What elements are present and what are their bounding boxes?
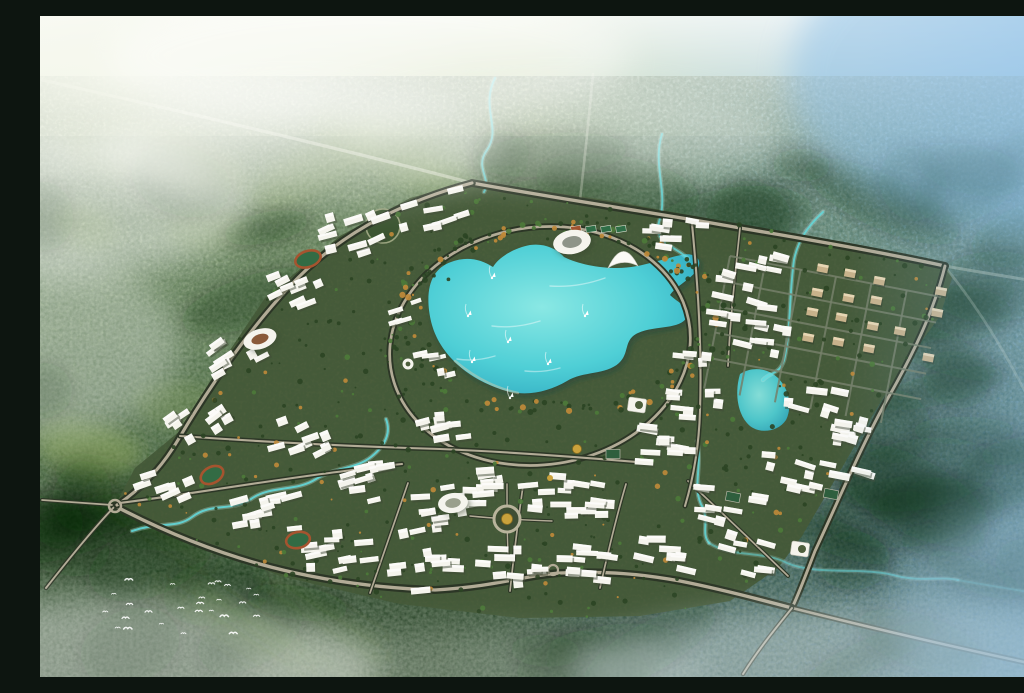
tree [226,532,230,536]
tree [552,401,555,404]
tree [238,337,242,341]
tree [138,503,142,507]
shore-tree [418,281,422,285]
tree [237,436,240,439]
tree [484,554,487,557]
lakeside-court [616,225,627,232]
tree [587,607,590,610]
tree [303,567,307,571]
shore-tree [485,400,490,405]
tree [546,237,549,240]
shore-tree [424,271,429,276]
tree [305,344,308,347]
tree [602,524,604,526]
shore-tree [399,292,405,298]
building-roof [565,513,578,516]
tree [324,425,327,428]
tree [590,535,592,537]
building-roof [430,555,439,558]
tree [392,334,394,336]
building-roof [324,537,339,539]
shore-tree [391,344,396,349]
tree [594,474,596,476]
tree [358,433,363,438]
tree [225,445,231,451]
tree [451,449,455,453]
shore-tree [518,409,522,413]
tree [527,471,532,476]
tree [255,563,258,566]
tree [346,523,349,526]
tree [320,353,325,358]
tree [421,261,423,263]
tree [252,390,256,394]
tree [627,222,630,225]
tree [362,352,365,355]
tree [542,400,547,405]
shore-tree [440,387,443,390]
tree [453,246,458,251]
tree [180,505,183,508]
shore-tree [579,220,583,224]
tree [465,399,469,403]
tree [314,320,317,323]
shore-tree [458,237,464,243]
tree [363,369,368,374]
shore-tree [527,409,533,415]
shore-tree [488,233,492,237]
tree [281,308,284,311]
tree [427,342,432,347]
tree [429,571,432,574]
tree [380,596,382,598]
building-roof [550,502,571,504]
tree [376,258,378,260]
tree [254,475,257,478]
shore-tree [620,393,625,398]
tree [611,548,613,550]
tree [282,404,286,408]
tree [366,572,369,575]
tree [324,368,326,370]
tree [605,217,608,220]
lakeside-court [601,225,612,232]
gold-spiral [573,445,582,454]
tree [458,587,463,592]
tree [429,399,432,402]
tree [557,200,559,202]
tree [201,433,206,438]
shore-tree [585,221,589,225]
cloud [100,86,500,206]
tree [298,339,301,342]
shore-tree [618,407,624,413]
tree [474,199,479,204]
shore-tree [600,234,605,239]
tree [384,409,386,411]
tree [259,425,263,429]
tree [214,507,217,510]
tree [430,568,433,571]
tree [237,545,240,548]
shore-tree [642,238,648,244]
building-roof [595,511,608,514]
tree [343,378,348,383]
tree [546,506,548,508]
tree [356,585,359,588]
shore-tree [501,226,505,230]
shore-tree [394,335,399,340]
tree [263,560,267,564]
shore-tree [552,226,557,231]
tree [615,480,619,484]
tree [341,545,344,548]
tree [406,341,411,346]
tree [327,320,331,324]
shore-tree [567,404,572,409]
tree [299,406,303,410]
tree [374,589,380,595]
tree [289,468,293,472]
tree [397,395,401,399]
tree [542,542,545,545]
tree [402,393,405,396]
shore-tree [388,339,393,344]
tree [383,261,386,264]
tree [424,202,430,208]
tree [212,518,217,523]
tree [337,401,339,403]
tree [445,454,449,458]
tree [585,524,587,526]
shore-tree [412,284,415,287]
tree [405,447,410,452]
shore-tree [432,274,436,278]
tree [547,513,550,516]
shore-tree [465,236,468,239]
tree [387,301,391,305]
tree [642,577,645,580]
tree [367,279,372,284]
tree [594,444,597,447]
shore-tree [454,240,459,245]
tree [544,218,547,221]
tree [622,599,627,604]
tree [479,408,483,412]
tree [295,404,298,407]
tree [261,434,264,437]
sailboat-hull [467,315,469,317]
tree [352,310,355,313]
shore-tree [647,244,651,248]
tree [478,198,481,201]
tree [244,477,248,481]
sailboat-hull [507,341,509,343]
tree [320,480,324,484]
tree [617,596,619,598]
gold-ornament [547,475,553,481]
building-roof [532,567,548,569]
shore-tree [398,327,402,331]
tree [266,530,268,532]
shore-tree [424,265,429,270]
tree [437,580,439,582]
tree [492,431,496,435]
aerial-render-canvas [40,16,1024,677]
tree [380,349,383,352]
shore-tree [474,246,478,250]
shore-tree [534,399,539,404]
tree [272,526,275,529]
tree [583,440,586,443]
tree [290,571,296,577]
tree [359,532,361,534]
tree [380,441,384,445]
shore-tree [608,235,611,238]
shore-tree [616,240,620,244]
tree [306,579,308,581]
tree [409,266,414,271]
tree [178,456,181,459]
shore-tree [432,365,434,367]
tree [335,288,338,291]
tree [580,566,584,570]
tree [338,464,341,467]
tree [503,197,506,200]
shore-tree [629,391,632,394]
tree [181,450,185,454]
tree [556,425,561,430]
tree [396,412,399,415]
shore-tree [520,404,526,410]
tree [124,492,127,495]
tree [341,390,344,393]
tree [427,523,431,527]
tree [558,574,561,577]
gold-monument [502,514,513,525]
shore-tree [582,404,585,407]
tree [196,539,198,541]
tree [524,538,526,540]
tree [146,495,149,498]
tree [467,461,469,463]
tree [635,565,639,569]
tree [543,581,547,585]
shore-tree [469,240,473,244]
tree [290,561,294,565]
tree [337,550,339,552]
tree [246,368,251,373]
tree [550,533,554,537]
tree [360,551,362,553]
tree [400,357,403,360]
tree [368,408,372,412]
shore-tree [443,389,448,394]
tree [571,553,574,556]
tree [584,225,586,227]
shore-tree [413,334,417,338]
tree [385,520,389,524]
tree [348,258,352,262]
tree [336,415,339,418]
tree [400,417,405,422]
tree [284,573,288,577]
building-roof [467,500,486,502]
lakeside-court [586,225,597,232]
tree [596,221,599,224]
shore-tree [582,407,585,410]
round-building-court [406,362,411,367]
shore-tree [644,251,650,257]
tree [558,600,563,605]
tree [437,247,441,251]
tree [404,388,408,392]
tree [526,205,528,207]
tree [419,306,423,310]
sailboat-hull [509,397,511,399]
shore-tree [532,226,536,230]
shore-tree [509,407,513,411]
tree [307,323,310,326]
tree [344,354,350,360]
tree [585,214,589,218]
tree [352,393,355,396]
shore-tree [403,285,408,290]
tree [591,601,596,606]
tree [274,546,279,551]
tree [576,460,581,465]
shore-tree [419,363,424,368]
tree [394,443,398,447]
tree [480,605,485,610]
tree [338,576,342,580]
tree [177,482,180,485]
tree [443,407,448,412]
tree [337,321,341,325]
tree [274,462,279,467]
tree [545,440,548,443]
shore-tree [438,257,444,263]
shore-tree [627,241,631,245]
shore-tree [520,222,526,228]
tree [530,200,533,203]
tree [566,202,568,204]
tree [538,558,542,562]
tree [550,610,553,613]
tree [218,391,222,395]
tree [226,482,228,484]
tree [228,453,231,456]
tree [258,445,260,447]
tree [404,336,408,340]
building-roof [482,483,503,485]
tree [431,487,436,492]
tree [535,529,539,533]
tree [297,379,303,385]
tree [447,277,451,281]
tree [323,470,326,473]
tree [168,504,172,508]
tree [389,232,394,237]
tree [365,510,369,514]
shore-tree [405,294,411,300]
tree [465,537,470,542]
tree [618,542,622,546]
tree [453,367,457,371]
tree [407,271,411,275]
shore-tree [502,232,506,236]
shore-tree [430,382,434,386]
tree [468,477,470,479]
sailboat-hull [547,363,549,365]
tree [356,577,360,581]
tree [418,322,422,326]
tree [282,550,287,555]
tree [212,398,217,403]
tree [172,445,176,449]
tree [464,242,467,245]
tree [279,362,281,364]
shore-tree [433,249,436,252]
tree [527,557,532,562]
tree [383,488,386,491]
shore-tree [494,239,498,243]
tree [355,435,358,438]
tree [350,540,352,542]
tree [404,469,407,472]
shore-tree [412,294,414,296]
tree [527,596,531,600]
tree [185,512,187,514]
tree [595,411,599,415]
tree [384,355,387,358]
tree [294,517,298,521]
tree [544,592,547,595]
shore-tree [558,221,563,226]
shore-tree [492,397,497,402]
east-haze-overlay [660,16,1024,677]
shore-tree [506,228,512,234]
tree [297,422,300,425]
tree [215,542,219,546]
aerial-city-rendering: Bird's-eye architectural rendering of a … [40,16,1024,677]
tree [291,480,295,484]
shore-tree [538,223,542,227]
shore-tree [447,255,449,257]
shore-tree [656,256,659,259]
shore-tree [613,401,618,406]
tree [422,382,425,385]
building-roof [557,555,573,558]
tree [414,368,417,371]
tree [493,461,497,465]
shore-tree [487,241,489,243]
building-roof [513,546,521,549]
tree [203,453,208,458]
shore-tree [560,401,563,404]
tree [408,465,412,469]
shore-tree [422,277,428,283]
tree [350,277,353,280]
tree [633,577,635,579]
building-roof [306,563,315,567]
tree [383,337,386,340]
tree [403,498,407,502]
shore-tree [401,279,405,283]
tree [608,207,613,212]
tree [395,212,400,217]
tree [387,361,389,363]
